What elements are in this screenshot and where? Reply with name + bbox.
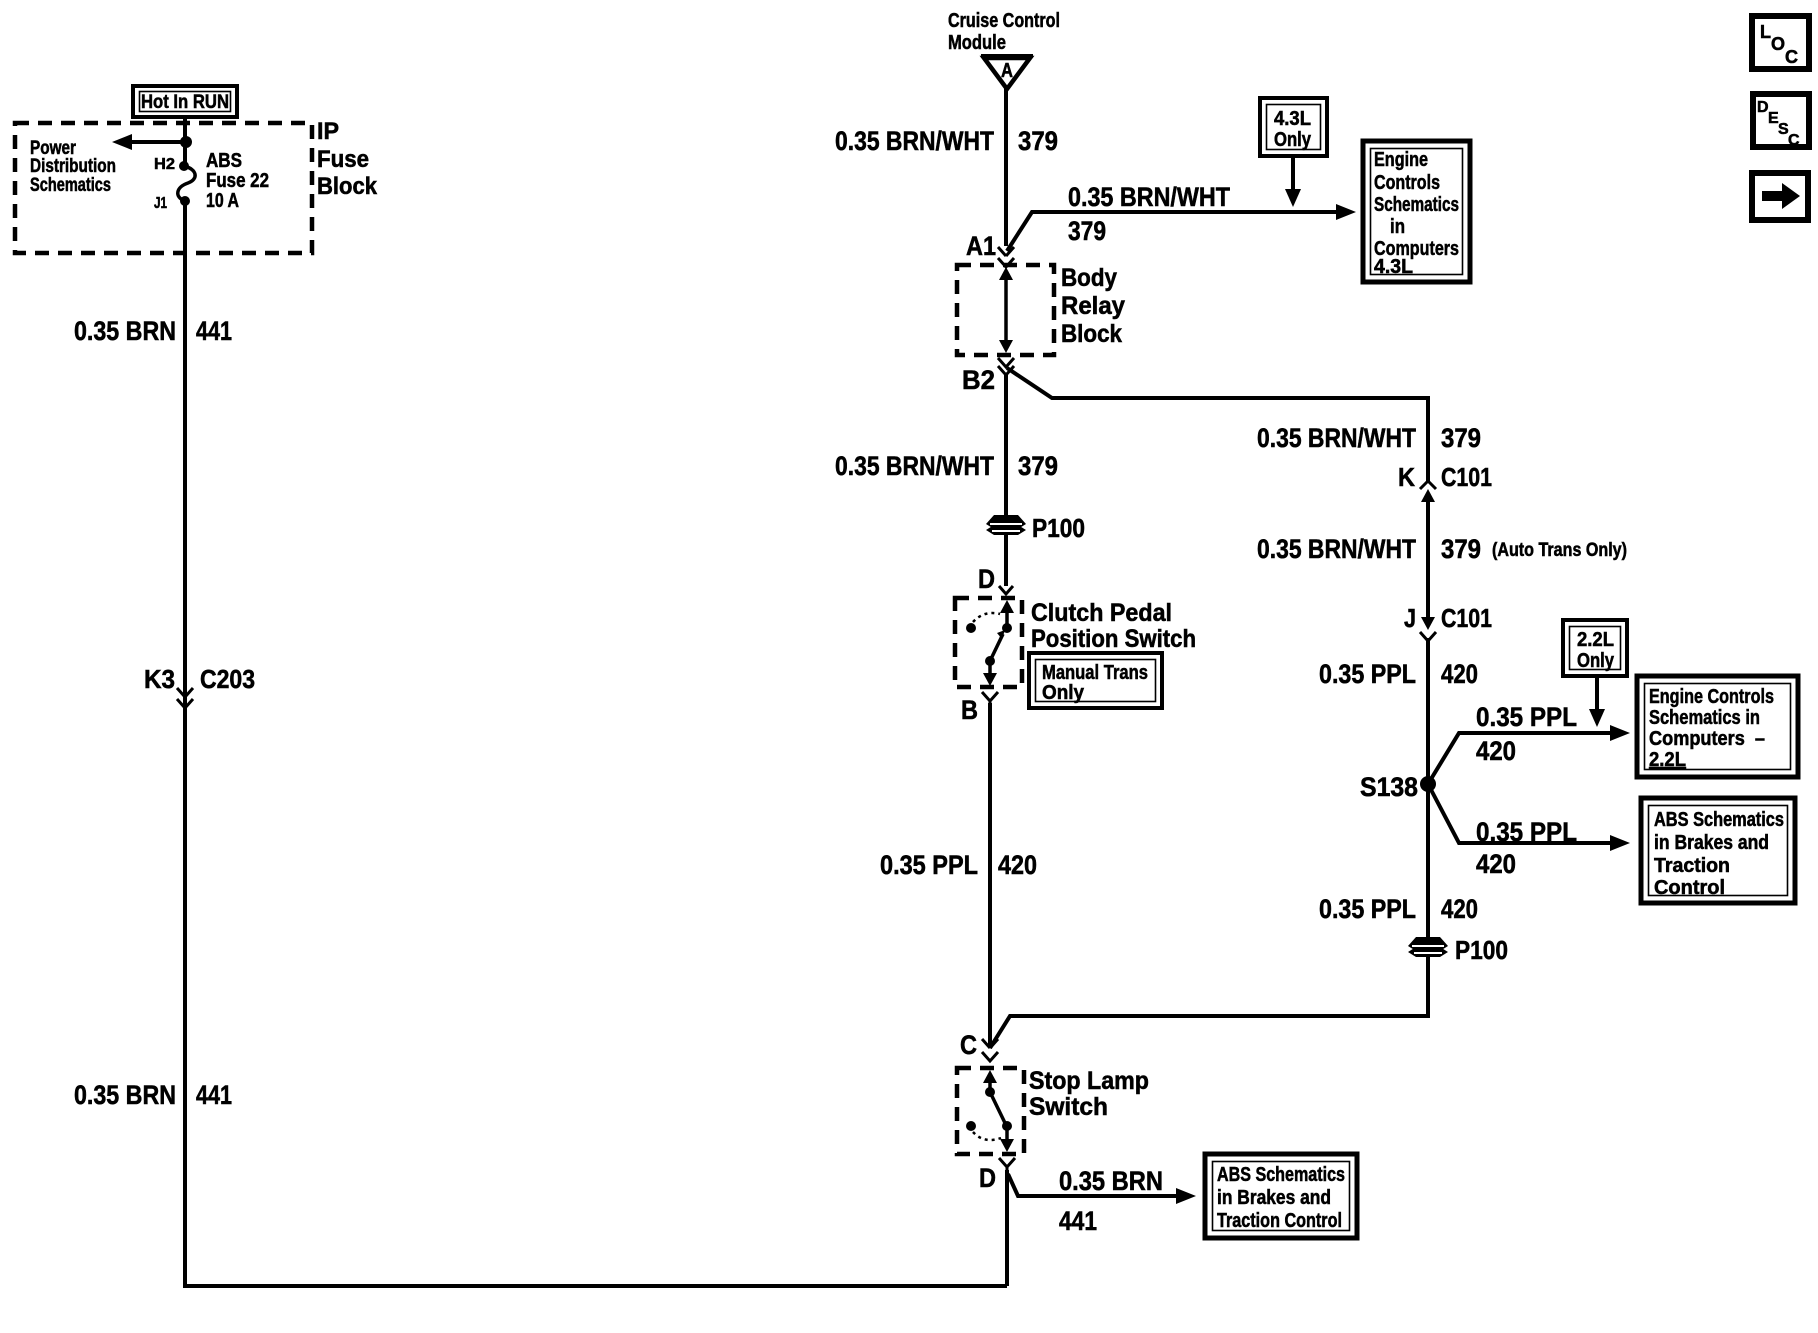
svg-text:A1: A1 <box>966 231 996 261</box>
svg-text:in Brakes and: in Brakes and <box>1654 832 1769 854</box>
svg-text:O: O <box>1771 34 1785 54</box>
svg-text:420: 420 <box>1476 849 1516 879</box>
svg-text:Control: Control <box>1654 877 1725 899</box>
svg-text:0.35 BRN: 0.35 BRN <box>1059 1166 1163 1196</box>
svg-text:C: C <box>1785 47 1798 67</box>
svg-text:Fuse 22: Fuse 22 <box>206 170 269 192</box>
svg-text:0.35 BRN/WHT: 0.35 BRN/WHT <box>1257 534 1416 564</box>
svg-text:Cruise Control: Cruise Control <box>948 10 1060 32</box>
svg-text:379: 379 <box>1068 216 1106 246</box>
svg-text:379: 379 <box>1018 126 1058 156</box>
svg-text:Distribution: Distribution <box>30 156 116 177</box>
svg-text:Fuse: Fuse <box>317 146 369 173</box>
svg-text:Module: Module <box>948 32 1006 54</box>
svg-text:Computers –: Computers – <box>1649 728 1765 750</box>
svg-text:379: 379 <box>1018 451 1058 481</box>
svg-text:B2: B2 <box>962 365 995 395</box>
svg-text:Only: Only <box>1274 129 1312 151</box>
svg-text:0.35 BRN/WHT: 0.35 BRN/WHT <box>835 126 994 156</box>
svg-text:0.35 PPL: 0.35 PPL <box>1476 817 1577 847</box>
svg-text:S138: S138 <box>1360 772 1418 802</box>
svg-text:Position Switch: Position Switch <box>1031 625 1196 653</box>
svg-text:B: B <box>961 695 978 725</box>
svg-text:H2: H2 <box>154 156 175 173</box>
svg-text:P100: P100 <box>1032 513 1085 543</box>
svg-text:(Auto Trans Only): (Auto Trans Only) <box>1492 540 1627 561</box>
svg-text:C101: C101 <box>1441 603 1492 633</box>
svg-text:0.35 BRN: 0.35 BRN <box>74 316 176 346</box>
svg-text:Schematics: Schematics <box>1374 194 1459 216</box>
svg-text:Manual Trans: Manual Trans <box>1042 662 1148 684</box>
svg-text:in Brakes and: in Brakes and <box>1217 1187 1331 1209</box>
svg-text:420: 420 <box>998 850 1037 880</box>
svg-text:420: 420 <box>1476 736 1516 766</box>
svg-text:D: D <box>979 1163 996 1193</box>
svg-text:K3: K3 <box>144 664 175 694</box>
svg-text:J1: J1 <box>154 195 167 212</box>
svg-text:J: J <box>1404 603 1416 633</box>
svg-text:Traction: Traction <box>1654 855 1730 877</box>
svg-text:Traction Control: Traction Control <box>1217 1210 1342 1232</box>
svg-text:A: A <box>1001 60 1013 82</box>
svg-text:10 A: 10 A <box>206 190 239 212</box>
svg-text:441: 441 <box>1059 1206 1097 1236</box>
svg-text:Block: Block <box>1061 320 1122 348</box>
svg-text:Stop Lamp: Stop Lamp <box>1029 1067 1149 1095</box>
svg-text:D: D <box>978 564 995 594</box>
svg-text:4.3L: 4.3L <box>1274 108 1311 130</box>
svg-text:0.35 PPL: 0.35 PPL <box>1319 659 1416 689</box>
svg-text:Engine: Engine <box>1374 149 1428 171</box>
svg-text:Clutch Pedal: Clutch Pedal <box>1031 599 1172 627</box>
svg-text:Engine Controls: Engine Controls <box>1649 686 1774 708</box>
svg-text:Body: Body <box>1061 264 1117 292</box>
svg-text:0.35 BRN/WHT: 0.35 BRN/WHT <box>835 451 994 481</box>
svg-text:C203: C203 <box>200 664 255 694</box>
svg-text:Schematics: Schematics <box>30 175 111 196</box>
svg-text:0.35 PPL: 0.35 PPL <box>880 850 978 880</box>
svg-text:C: C <box>960 1030 977 1060</box>
svg-text:ABS Schematics: ABS Schematics <box>1654 809 1784 831</box>
svg-text:4.3L: 4.3L <box>1374 256 1413 278</box>
svg-text:C: C <box>1788 132 1800 149</box>
svg-text:420: 420 <box>1441 659 1478 689</box>
svg-text:IP: IP <box>317 118 339 145</box>
svg-text:Hot In RUN: Hot In RUN <box>141 92 229 113</box>
svg-text:in: in <box>1390 216 1405 238</box>
svg-text:D: D <box>1757 99 1769 116</box>
svg-text:441: 441 <box>196 1080 232 1110</box>
svg-text:Only: Only <box>1042 682 1085 704</box>
svg-text:Relay: Relay <box>1061 292 1125 320</box>
svg-text:379: 379 <box>1441 423 1481 453</box>
svg-text:ABS Schematics: ABS Schematics <box>1217 1164 1345 1186</box>
svg-text:0.35 BRN/WHT: 0.35 BRN/WHT <box>1257 423 1416 453</box>
svg-text:0.35 BRN/WHT: 0.35 BRN/WHT <box>1068 182 1230 212</box>
svg-text:L: L <box>1760 22 1771 42</box>
svg-text:P100: P100 <box>1455 935 1508 965</box>
svg-text:Controls: Controls <box>1374 172 1440 194</box>
svg-text:Block: Block <box>317 173 378 200</box>
svg-text:0.35 BRN: 0.35 BRN <box>74 1080 176 1110</box>
svg-text:0.35 PPL: 0.35 PPL <box>1476 702 1577 732</box>
svg-text:Switch: Switch <box>1029 1093 1108 1121</box>
svg-text:2.2L: 2.2L <box>1577 629 1614 651</box>
svg-text:0.35 PPL: 0.35 PPL <box>1319 894 1416 924</box>
svg-text:2.2L: 2.2L <box>1649 749 1686 771</box>
svg-text:420: 420 <box>1441 894 1478 924</box>
svg-text:Only: Only <box>1577 650 1615 672</box>
svg-text:C101: C101 <box>1441 462 1492 492</box>
svg-text:379: 379 <box>1441 534 1481 564</box>
svg-text:ABS: ABS <box>206 150 242 172</box>
svg-text:K: K <box>1398 462 1415 492</box>
svg-text:441: 441 <box>196 316 232 346</box>
svg-text:Schematics in: Schematics in <box>1649 707 1760 729</box>
